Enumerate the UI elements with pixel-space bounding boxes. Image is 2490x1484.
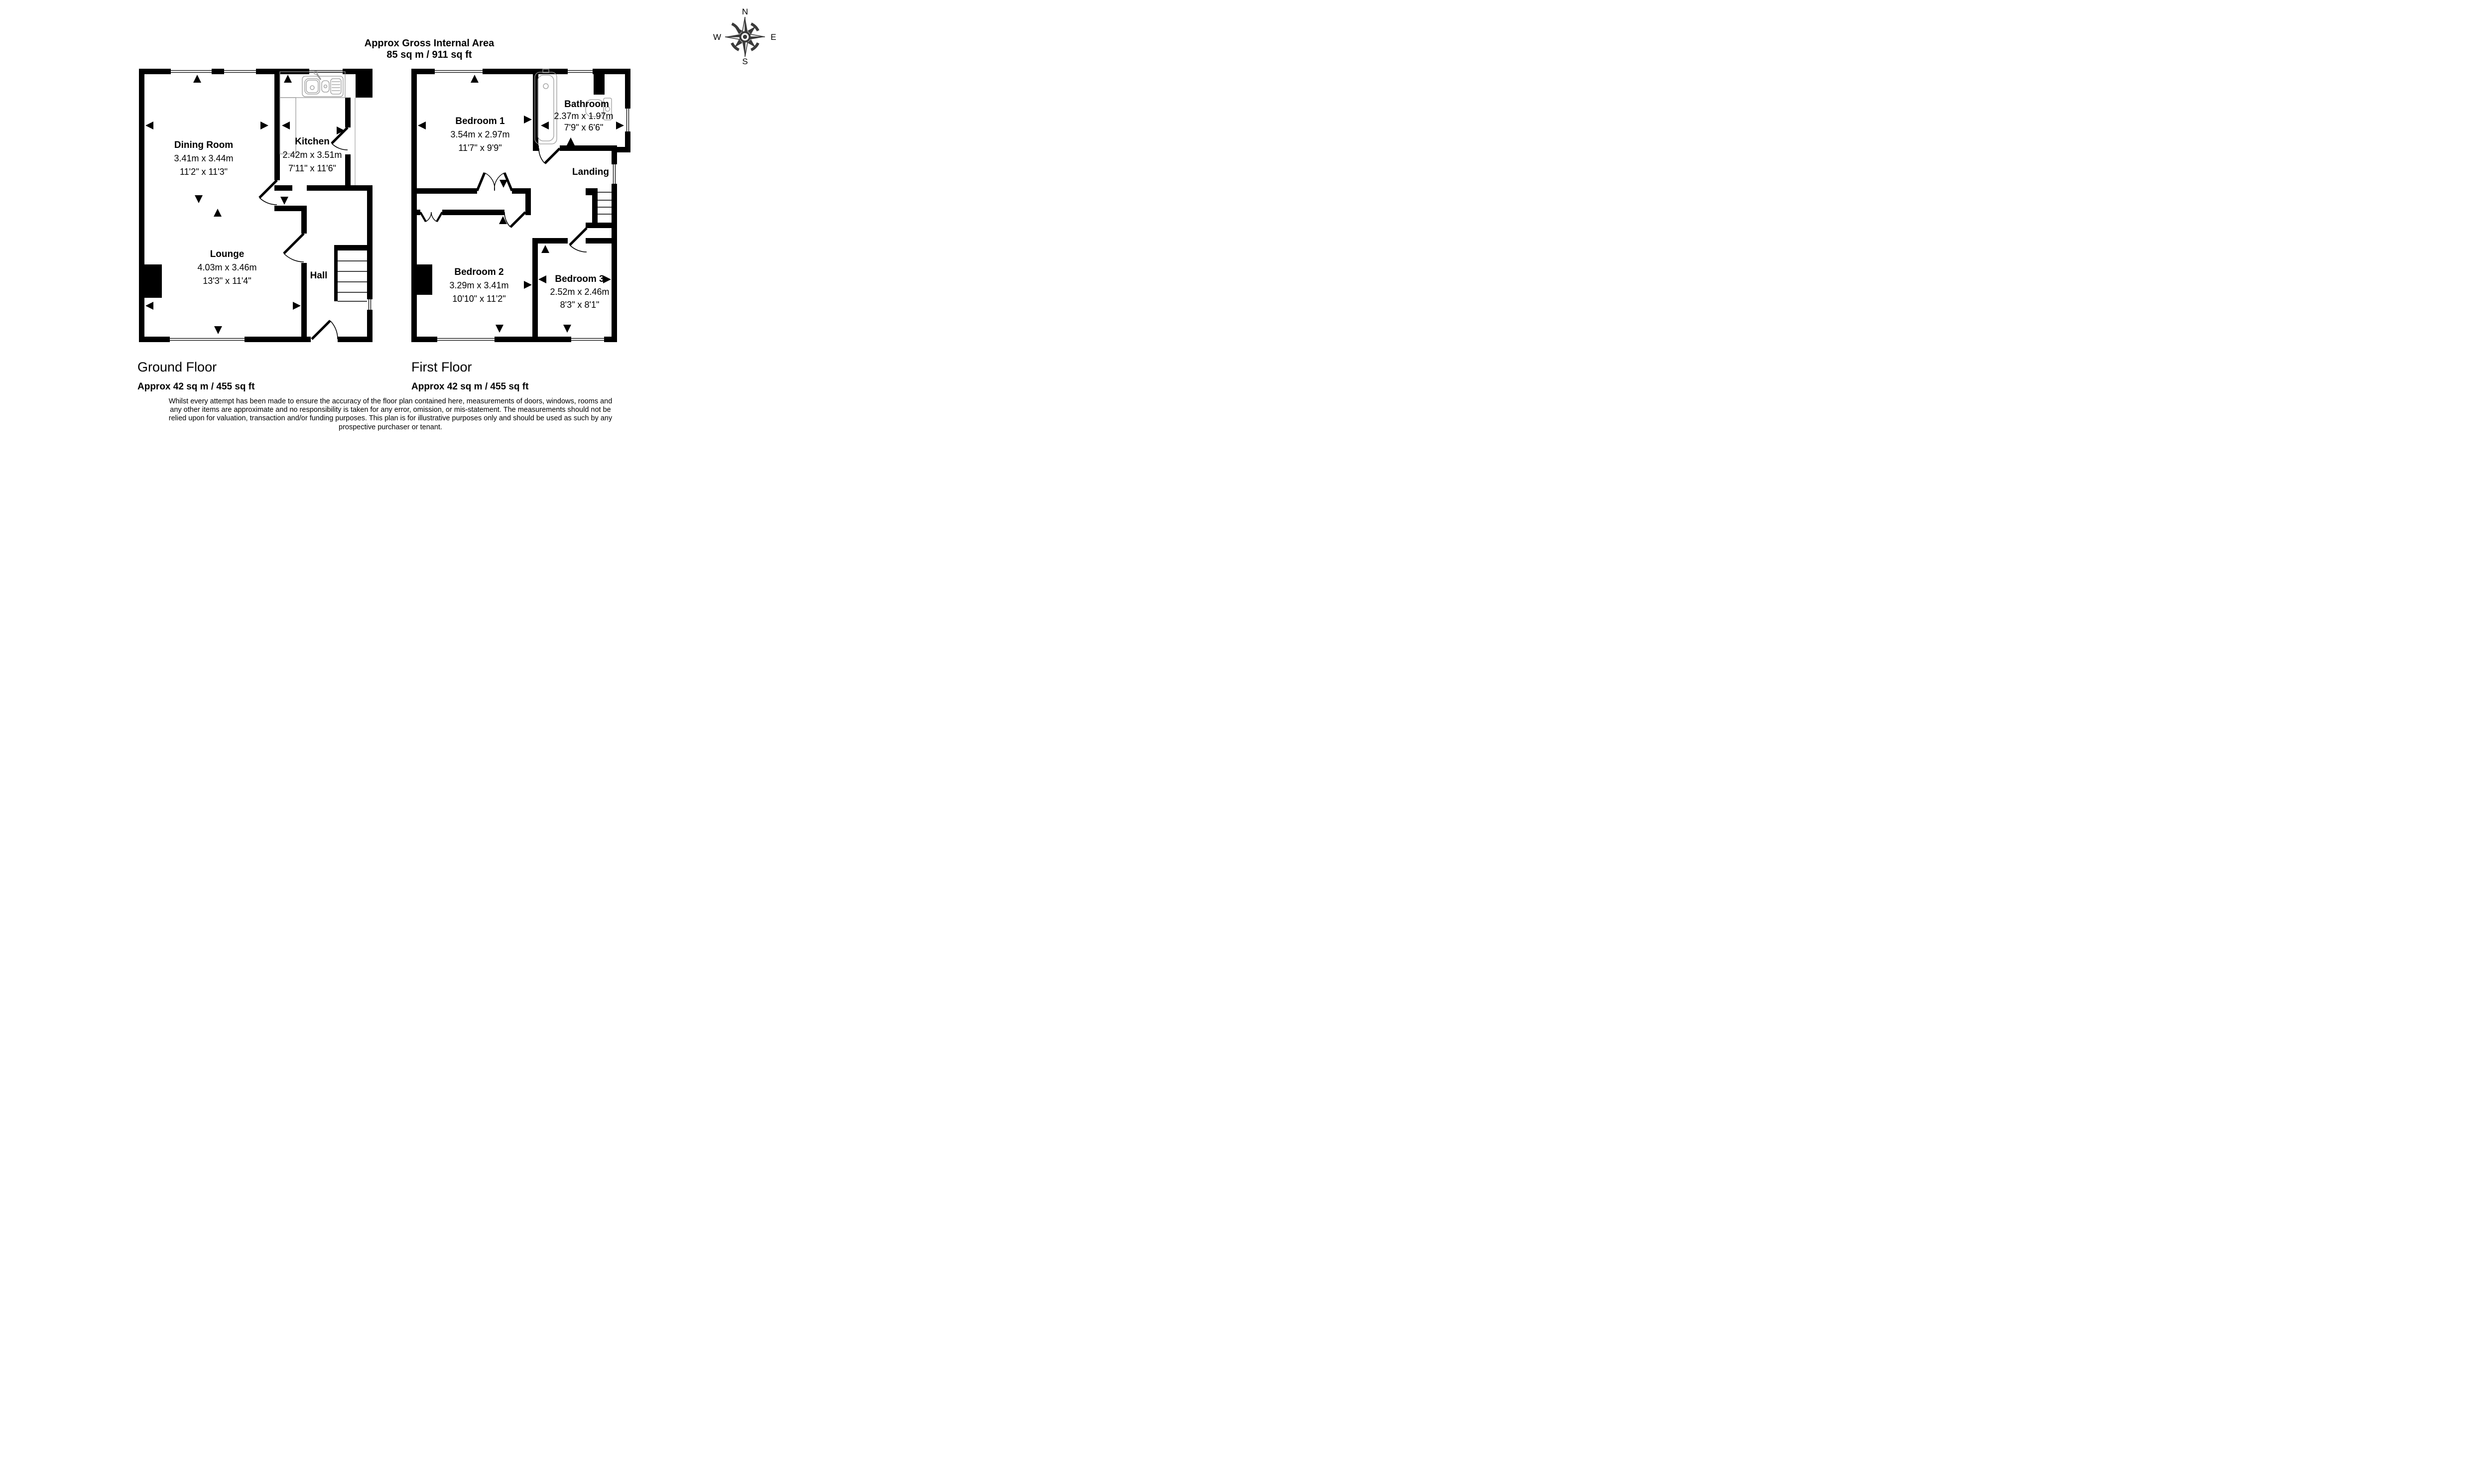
- staircase-first: [598, 192, 612, 214]
- compass-s: S: [742, 57, 747, 66]
- arrow-right-icon: [524, 116, 532, 124]
- chimney-breast-ground: [139, 264, 162, 298]
- door-front: [312, 321, 338, 339]
- window-bedroom2: [437, 337, 495, 342]
- bedroom2-metric: 3.29m x 3.41m: [449, 280, 508, 290]
- first-doors: [420, 148, 587, 252]
- first-floor-plan: Bedroom 1 3.54m x 2.97m 11'7" x 9'9" Bat…: [411, 69, 630, 342]
- arrow-up-icon: [193, 75, 201, 83]
- arrow-left-icon: [541, 122, 549, 129]
- ground-measure-arrows: [145, 75, 345, 334]
- compass-e: E: [770, 32, 776, 42]
- arrow-left-icon: [282, 122, 290, 129]
- disclaimer-line: relied upon for valuation, transaction a…: [0, 414, 781, 423]
- window-bedroom1: [435, 69, 483, 74]
- window-lounge: [170, 337, 245, 342]
- door-bedroom3: [570, 228, 587, 252]
- arrow-right-icon: [616, 122, 624, 129]
- floorplan-drawing: Dining Room 3.41m x 3.44m 11'2" x 11'3" …: [0, 0, 781, 438]
- arrow-up-icon: [567, 137, 575, 145]
- arrow-down-icon: [214, 326, 222, 334]
- arrow-up-icon: [471, 75, 479, 83]
- arrow-left-icon: [145, 302, 153, 310]
- dining-room-metric: 3.41m x 3.44m: [174, 153, 233, 163]
- disclaimer-line: prospective purchaser or tenant.: [0, 423, 781, 432]
- kitchen-label: Kitchen: [295, 136, 330, 147]
- chimney-breast-first: [411, 264, 432, 295]
- window-hall: [367, 299, 373, 310]
- arrow-down-icon: [280, 197, 288, 205]
- door-lounge: [284, 234, 304, 262]
- arrow-down-icon: [499, 180, 507, 188]
- double-doors-bedroom1: [477, 173, 512, 191]
- bedroom1-metric: 3.54m x 2.97m: [450, 129, 509, 139]
- dining-room-imperial: 11'2" x 11'3": [180, 167, 228, 177]
- bathroom-label: Bathroom: [564, 99, 609, 110]
- hall-label: Hall: [310, 270, 328, 281]
- double-doors-bedroom2: [420, 212, 442, 222]
- ground-floor-plan: Dining Room 3.41m x 3.44m 11'2" x 11'3" …: [139, 69, 373, 342]
- bedroom3-metric: 2.52m x 2.46m: [550, 287, 609, 297]
- compass-w: W: [713, 32, 721, 42]
- ar row-down-icon: [195, 195, 203, 203]
- arrow-down-icon: [563, 325, 571, 333]
- arrow-up-icon: [284, 75, 292, 83]
- bedroom1-label: Bedroom 1: [455, 116, 505, 126]
- bathroom-imperial: 7'9" x 6'6": [564, 123, 604, 132]
- ground-floor-caption: Ground Floor: [137, 360, 217, 375]
- arrow-down-icon: [496, 325, 503, 333]
- window-bathroom-side: [625, 109, 630, 131]
- bathtub: [535, 69, 557, 144]
- first-floor-area: Approx 42 sq m / 455 sq ft: [411, 381, 528, 392]
- lounge-label: Lounge: [210, 249, 245, 259]
- bedroom2-imperial: 10'10" x 11'2": [452, 294, 505, 304]
- door-bathroom: [539, 148, 560, 163]
- floorplan-page: { "title": {"line1": "Approx Gross Inter…: [0, 0, 781, 438]
- compass-n: N: [742, 7, 748, 16]
- first-floor-caption: First Floor: [411, 360, 472, 375]
- arrow-right-icon: [293, 302, 301, 310]
- bedroom3-label: Bedroom 3: [555, 274, 604, 284]
- arrow-right-icon: [260, 122, 268, 129]
- dining-room-label: Dining Room: [174, 140, 233, 150]
- window-dining-2: [224, 69, 256, 74]
- window-landing: [612, 164, 617, 184]
- disclaimer-text: Whilst every attempt has been made to en…: [0, 397, 781, 432]
- window-bathroom-top: [568, 69, 593, 74]
- arrow-right-icon: [524, 281, 532, 289]
- compass-rose-icon: N E S W: [713, 7, 776, 66]
- landing-label: Landing: [572, 167, 609, 177]
- arrow-left-icon: [418, 122, 426, 129]
- staircase-ground: [338, 261, 367, 301]
- disclaimer-line: any other items are approximate and no r…: [0, 406, 781, 414]
- door-bedroom2: [504, 212, 525, 227]
- lounge-metric: 4.03m x 3.46m: [197, 262, 256, 272]
- kitchen-metric: 2.42m x 3.51m: [282, 150, 342, 160]
- arrow-up-icon: [541, 245, 549, 253]
- lounge-imperial: 13'3" x 11'4": [203, 276, 251, 286]
- bathroom-metric: 2.37m x 1.97m: [554, 111, 613, 121]
- kitchen-imperial: 7'11" x 11'6": [288, 163, 336, 173]
- window-bedroom3: [571, 337, 604, 342]
- ground-floor-area: Approx 42 sq m / 455 sq ft: [137, 381, 254, 392]
- ground-walls: [139, 69, 373, 342]
- bedroom3-imperial: 8'3" x 8'1": [560, 300, 600, 310]
- window-dining-1: [171, 69, 212, 74]
- arrow-left-icon: [538, 275, 546, 283]
- bedroom1-imperial: 11'7" x 9'9": [458, 143, 501, 153]
- arrow-left-icon: [145, 122, 153, 129]
- bedroom2-label: Bedroom 2: [454, 267, 503, 277]
- door-dining: [259, 180, 277, 205]
- disclaimer-line: Whilst every attempt has been made to en…: [0, 397, 781, 406]
- arrow-up-icon: [214, 209, 222, 217]
- kitchen-sink: [302, 71, 343, 97]
